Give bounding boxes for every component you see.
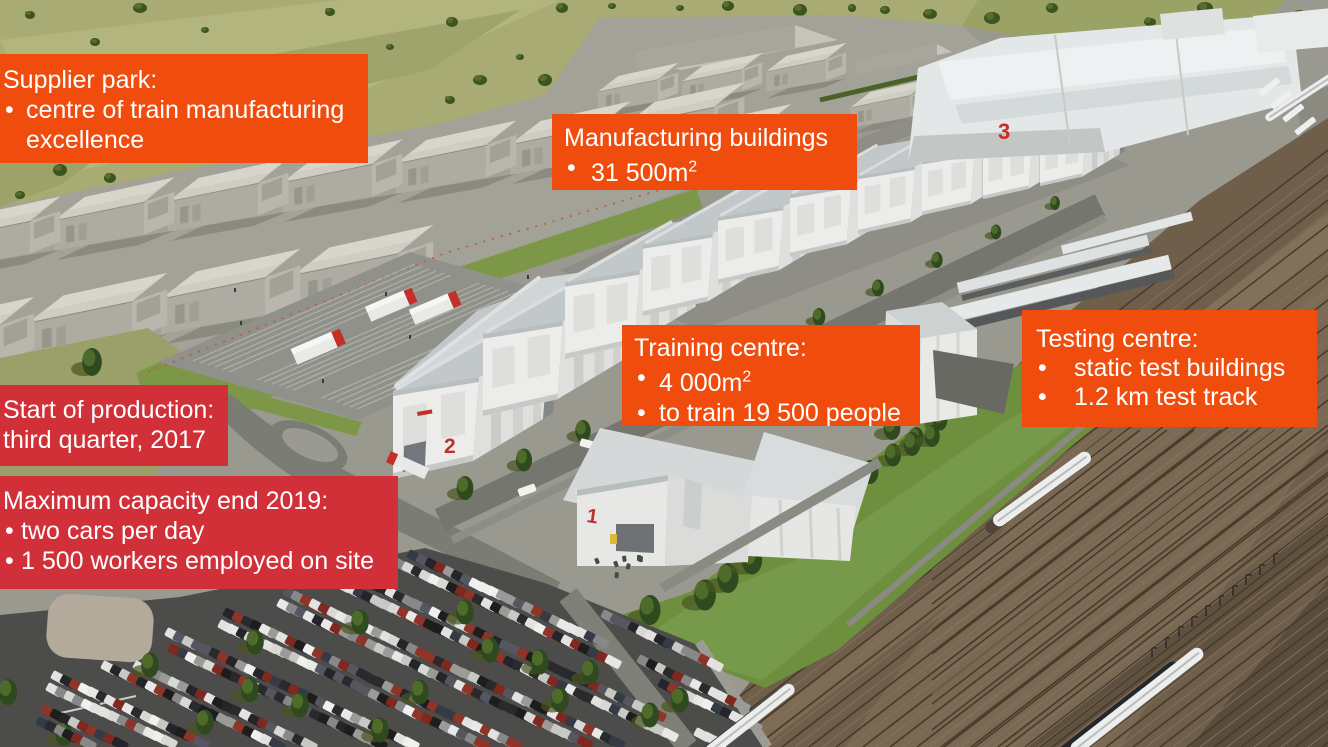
svg-text:2: 2 [444,435,456,458]
svg-text:3: 3 [998,119,1010,144]
